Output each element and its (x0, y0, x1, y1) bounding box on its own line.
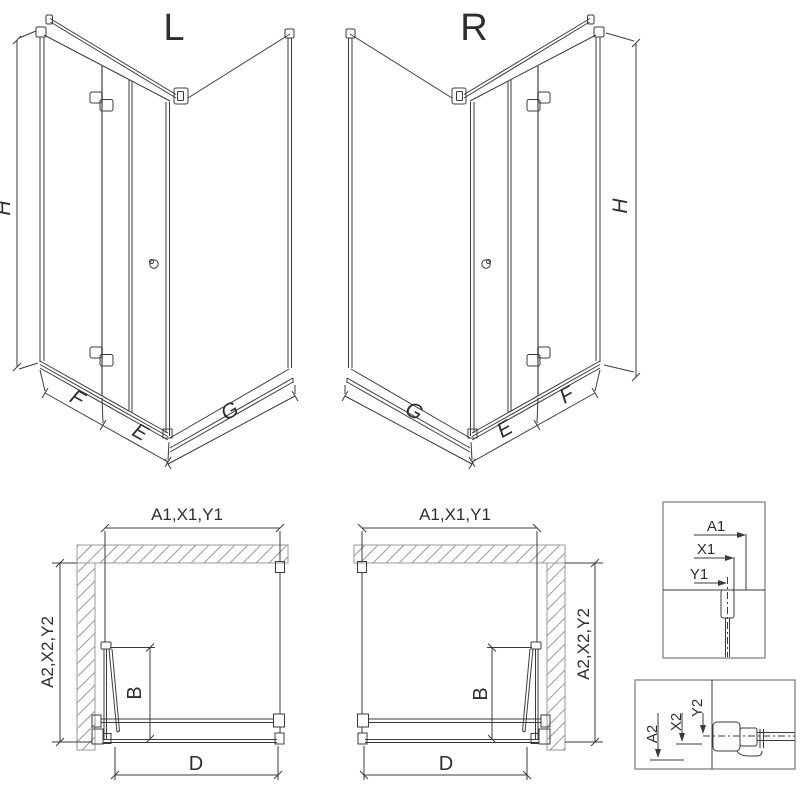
plan-left-door-dim: B (124, 686, 146, 699)
iso-left-height-dim (13, 31, 38, 371)
iso-view-left: L H F E G (0, 7, 298, 469)
plan-view-right: A1,X1,Y1 A2,X2,Y2 B D (354, 505, 603, 780)
detail-dim-x1: X1 (697, 541, 715, 558)
detail-dim-a1: A1 (707, 518, 725, 535)
detail-dim-y1: Y1 (690, 566, 708, 583)
detail-dim-y2: Y2 (689, 699, 706, 717)
wall-top-left-plan (77, 545, 288, 563)
detail-bottom-profile: A2 X2 Y2 (635, 680, 795, 769)
dim-label-g-left: G (217, 397, 242, 425)
dim-label-h-right: H (609, 198, 632, 214)
detail-dim-x2: X2 (668, 713, 685, 731)
plan-right-width-dims: A1,X1,Y1 (419, 505, 491, 524)
detail-dim-a2: A2 (644, 725, 661, 743)
shower-enclosure-technical-drawing: L H F E G R H F E G A1,X1,Y1 (0, 0, 800, 800)
plan-right-depth-dims: A2,X2,Y2 (574, 608, 593, 680)
wall-top-right-plan (354, 545, 565, 563)
detail-bottom-frame (635, 680, 795, 769)
plan-right-door-dim: B (470, 687, 492, 700)
iso-view-right: R H F E G (342, 7, 640, 469)
plan-left-width-dims: A1,X1,Y1 (151, 505, 223, 524)
detail-top-arrowheads (718, 532, 746, 586)
dim-label-h-left: H (0, 200, 15, 216)
drawing-canvas: L H F E G R H F E G A1,X1,Y1 (0, 0, 800, 800)
dim-label-f-left: F (66, 385, 89, 412)
detail-wall-profile: A1 X1 Y1 (663, 502, 765, 658)
plan-right-entry-dim: D (439, 753, 453, 775)
variant-label-left: L (163, 7, 184, 49)
plan-left-depth-dims: A2,X2,Y2 (38, 616, 57, 688)
plan-left-entry-dim: D (189, 753, 203, 775)
plan-view-left: A1,X1,Y1 A2,X2,Y2 B D (38, 505, 288, 780)
variant-label-right: R (460, 7, 487, 49)
